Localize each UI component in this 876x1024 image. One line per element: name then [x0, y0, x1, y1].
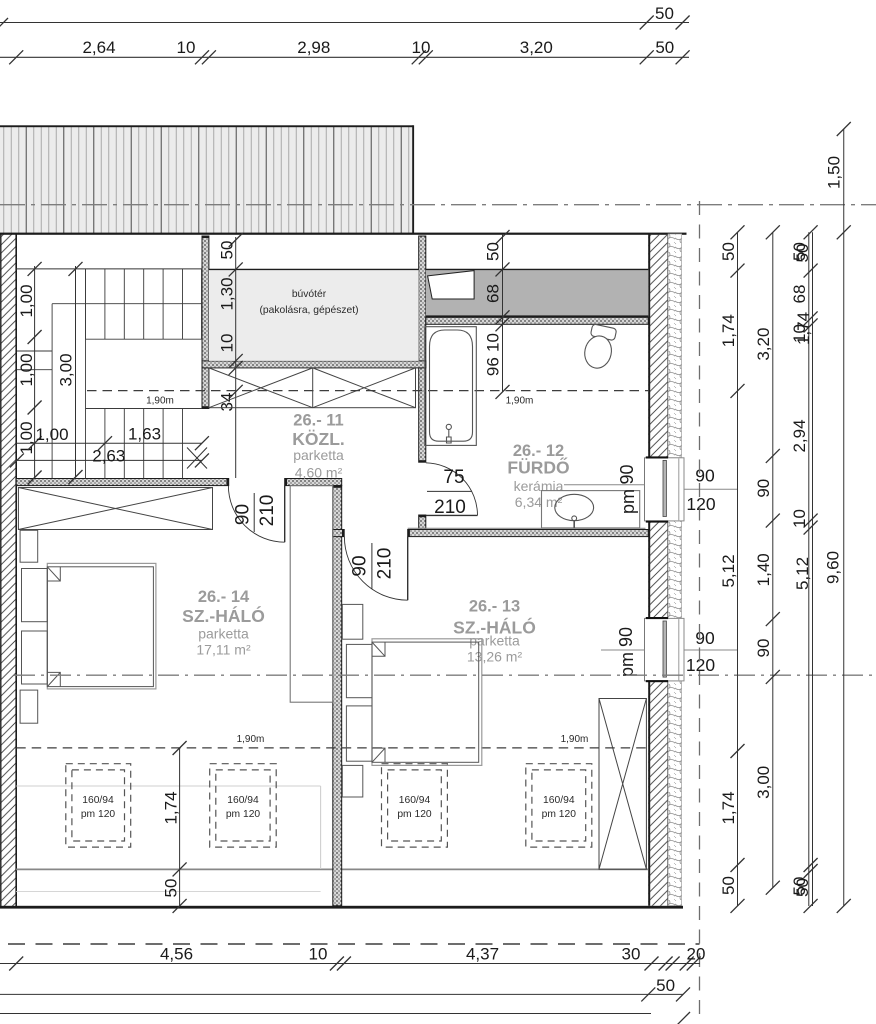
svg-text:pm: pm — [617, 652, 637, 677]
svg-text:50: 50 — [161, 879, 180, 898]
svg-text:50: 50 — [719, 242, 738, 261]
svg-text:4,60 m²: 4,60 m² — [295, 465, 343, 481]
svg-text:5,12: 5,12 — [793, 557, 812, 590]
svg-text:90: 90 — [350, 555, 371, 576]
svg-text:4,37: 4,37 — [466, 945, 499, 964]
svg-text:26.- 11: 26.- 11 — [293, 412, 343, 430]
svg-text:(pakolásra, gépészet): (pakolásra, gépészet) — [259, 305, 358, 316]
svg-text:50: 50 — [483, 242, 502, 261]
svg-text:1,90m: 1,90m — [146, 396, 174, 407]
svg-text:2,64: 2,64 — [82, 38, 115, 57]
svg-text:pm 120: pm 120 — [542, 809, 577, 820]
svg-text:68: 68 — [483, 284, 502, 303]
svg-text:10: 10 — [309, 945, 328, 964]
svg-text:160/94: 160/94 — [82, 795, 114, 806]
svg-text:90: 90 — [754, 639, 773, 658]
svg-text:1,50: 1,50 — [824, 156, 843, 189]
svg-text:10: 10 — [483, 333, 502, 352]
svg-text:1,40: 1,40 — [754, 553, 773, 586]
svg-text:1,00: 1,00 — [17, 421, 36, 454]
svg-text:10: 10 — [217, 334, 236, 353]
svg-text:210: 210 — [257, 495, 278, 527]
svg-text:120: 120 — [686, 655, 715, 675]
svg-text:pm 120: pm 120 — [397, 809, 432, 820]
svg-text:9,60: 9,60 — [823, 551, 842, 584]
svg-text:96: 96 — [483, 357, 502, 376]
svg-text:50: 50 — [793, 878, 812, 897]
svg-text:90: 90 — [695, 628, 715, 648]
svg-text:26.- 14: 26.- 14 — [198, 588, 250, 606]
svg-text:3,20: 3,20 — [520, 38, 553, 57]
svg-text:50: 50 — [793, 244, 812, 263]
svg-text:75: 75 — [443, 467, 464, 488]
svg-text:3,20: 3,20 — [754, 328, 773, 361]
svg-text:10: 10 — [177, 38, 196, 57]
svg-text:10: 10 — [412, 38, 431, 57]
svg-text:1,30: 1,30 — [217, 277, 236, 310]
svg-text:68: 68 — [790, 285, 809, 304]
svg-text:50: 50 — [217, 241, 236, 260]
svg-text:1,00: 1,00 — [17, 284, 36, 317]
svg-text:3,00: 3,00 — [56, 353, 75, 386]
svg-text:1,00: 1,00 — [17, 353, 36, 386]
svg-text:búvótér: búvótér — [292, 289, 327, 300]
svg-text:50: 50 — [656, 976, 675, 995]
svg-text:pm 120: pm 120 — [226, 809, 261, 820]
svg-text:210: 210 — [434, 497, 466, 518]
svg-text:160/94: 160/94 — [399, 795, 431, 806]
svg-text:1,74: 1,74 — [794, 312, 813, 345]
svg-text:1,74: 1,74 — [161, 791, 180, 824]
svg-text:kerámia: kerámia — [514, 478, 564, 494]
svg-text:parketta: parketta — [198, 626, 249, 642]
svg-text:FÜRDŐ: FÜRDŐ — [507, 457, 569, 478]
svg-text:13,26 m²: 13,26 m² — [467, 649, 523, 665]
svg-text:1,74: 1,74 — [719, 791, 738, 824]
svg-text:120: 120 — [686, 494, 715, 514]
svg-text:3,00: 3,00 — [754, 766, 773, 799]
svg-text:1,90m: 1,90m — [561, 734, 589, 745]
svg-text:90: 90 — [695, 466, 715, 486]
svg-text:4,56: 4,56 — [160, 945, 193, 964]
svg-text:2,98: 2,98 — [297, 38, 330, 57]
svg-text:6,34 m²: 6,34 m² — [515, 494, 563, 510]
svg-text:17,11 m²: 17,11 m² — [196, 642, 251, 658]
svg-text:20: 20 — [687, 945, 706, 964]
svg-text:160/94: 160/94 — [543, 795, 575, 806]
svg-text:parketta: parketta — [469, 633, 520, 649]
svg-text:50: 50 — [655, 4, 674, 23]
svg-text:1,00: 1,00 — [35, 425, 68, 444]
svg-text:1,74: 1,74 — [719, 314, 738, 347]
svg-text:90: 90 — [233, 504, 254, 525]
svg-text:26.- 13: 26.- 13 — [469, 598, 520, 616]
svg-text:34: 34 — [217, 393, 236, 412]
svg-text:210: 210 — [375, 548, 396, 580]
svg-text:90: 90 — [754, 479, 773, 498]
svg-text:KÖZL.: KÖZL. — [292, 429, 345, 449]
svg-text:parketta: parketta — [293, 447, 344, 463]
svg-text:5,12: 5,12 — [719, 554, 738, 587]
svg-text:90: 90 — [616, 627, 636, 647]
svg-text:1,63: 1,63 — [128, 425, 161, 444]
svg-text:50: 50 — [719, 876, 738, 895]
svg-text:2,94: 2,94 — [790, 419, 809, 452]
svg-text:160/94: 160/94 — [227, 795, 259, 806]
svg-text:pm: pm — [618, 489, 638, 514]
svg-text:SZ.-HÁLÓ: SZ.-HÁLÓ — [182, 605, 265, 626]
svg-text:50: 50 — [655, 38, 674, 57]
svg-text:30: 30 — [622, 945, 641, 964]
svg-text:90: 90 — [617, 464, 637, 484]
svg-text:1,90m: 1,90m — [237, 734, 265, 745]
svg-text:2,63: 2,63 — [92, 447, 125, 466]
svg-text:pm 120: pm 120 — [81, 809, 116, 820]
svg-text:10: 10 — [790, 509, 809, 528]
svg-text:1,90m: 1,90m — [506, 396, 534, 407]
